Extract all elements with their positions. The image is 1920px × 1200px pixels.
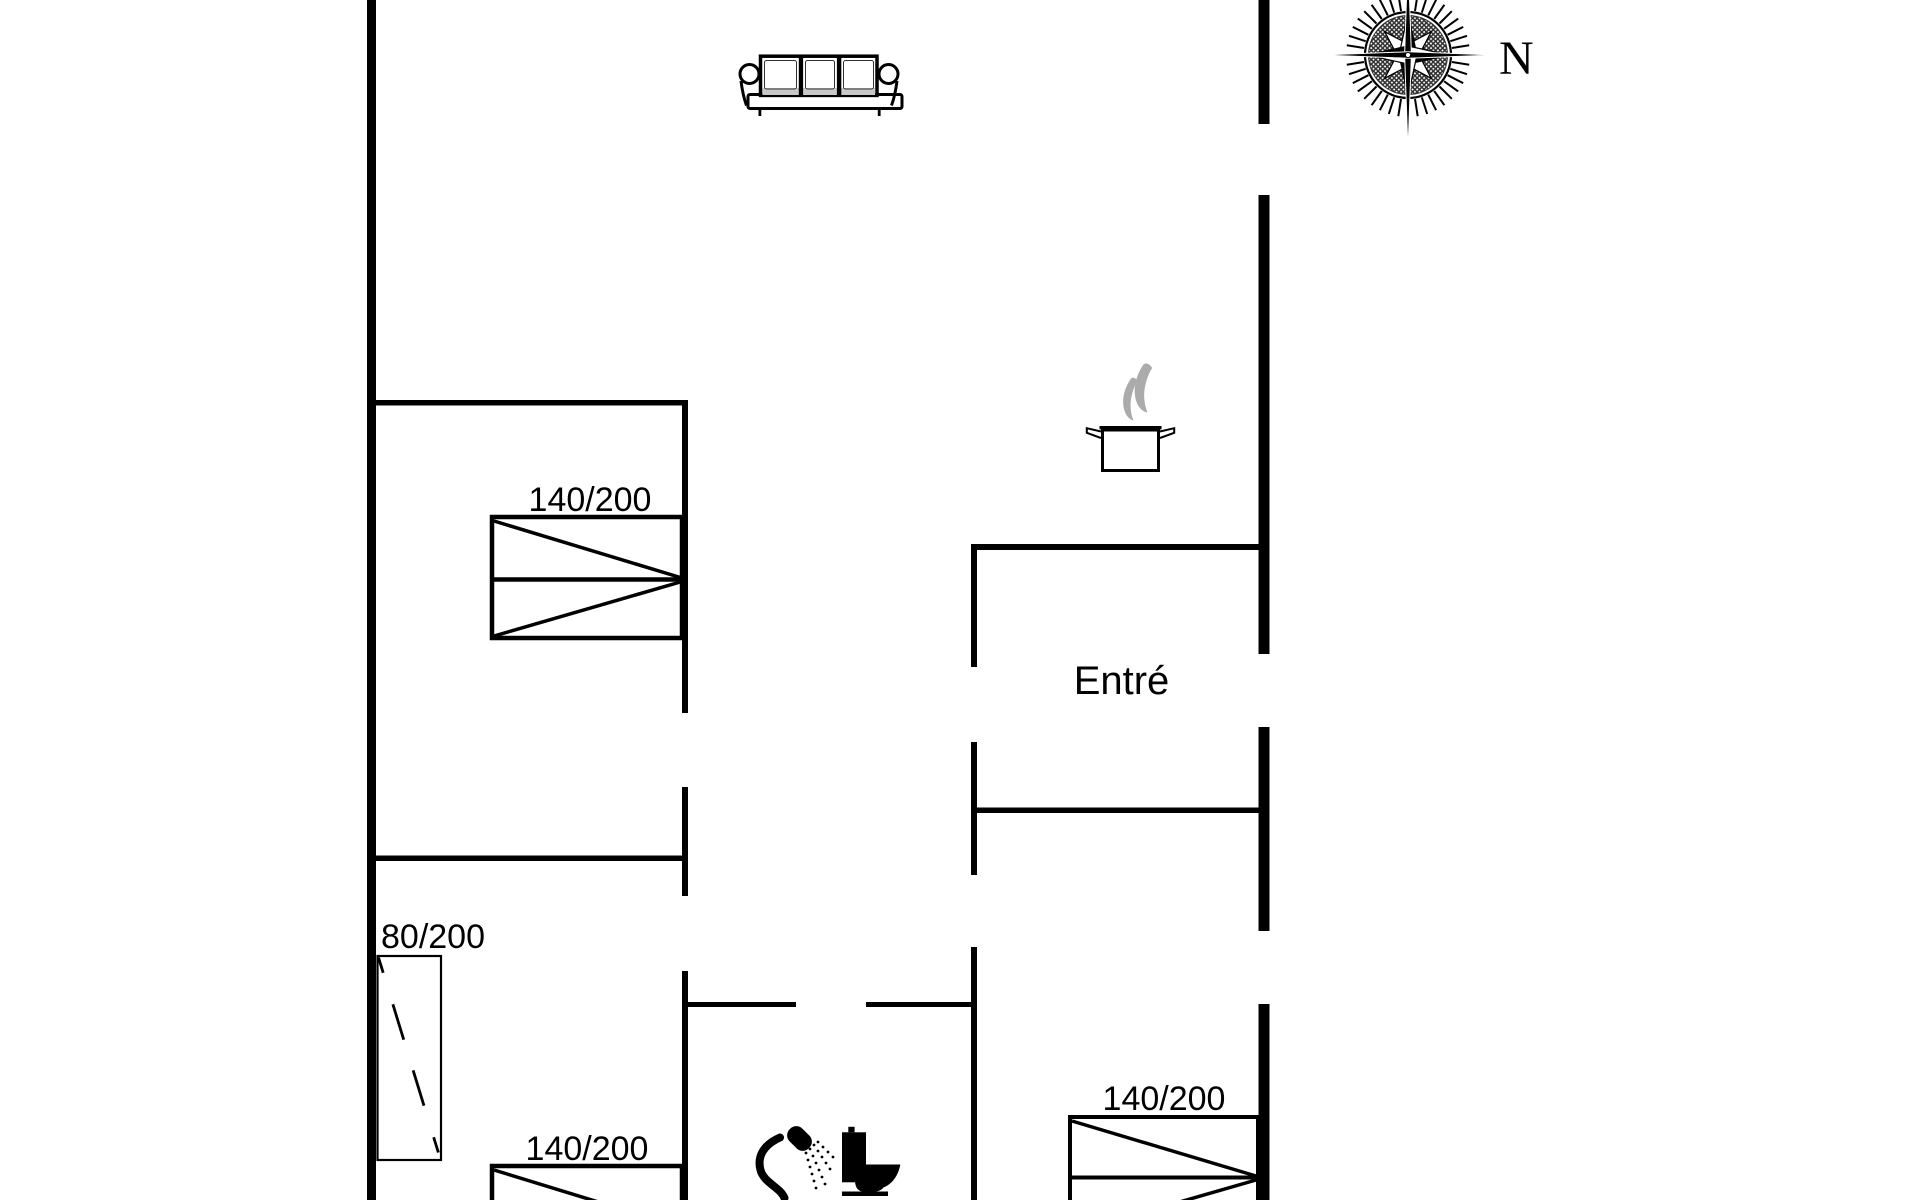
svg-text:Entré: Entré: [1074, 659, 1170, 703]
svg-text:140/200: 140/200: [1103, 1080, 1226, 1118]
svg-text:140/200: 140/200: [526, 1130, 649, 1168]
svg-text:N: N: [1499, 32, 1534, 85]
svg-text:140/200: 140/200: [529, 481, 652, 519]
svg-text:80/200: 80/200: [381, 918, 485, 956]
